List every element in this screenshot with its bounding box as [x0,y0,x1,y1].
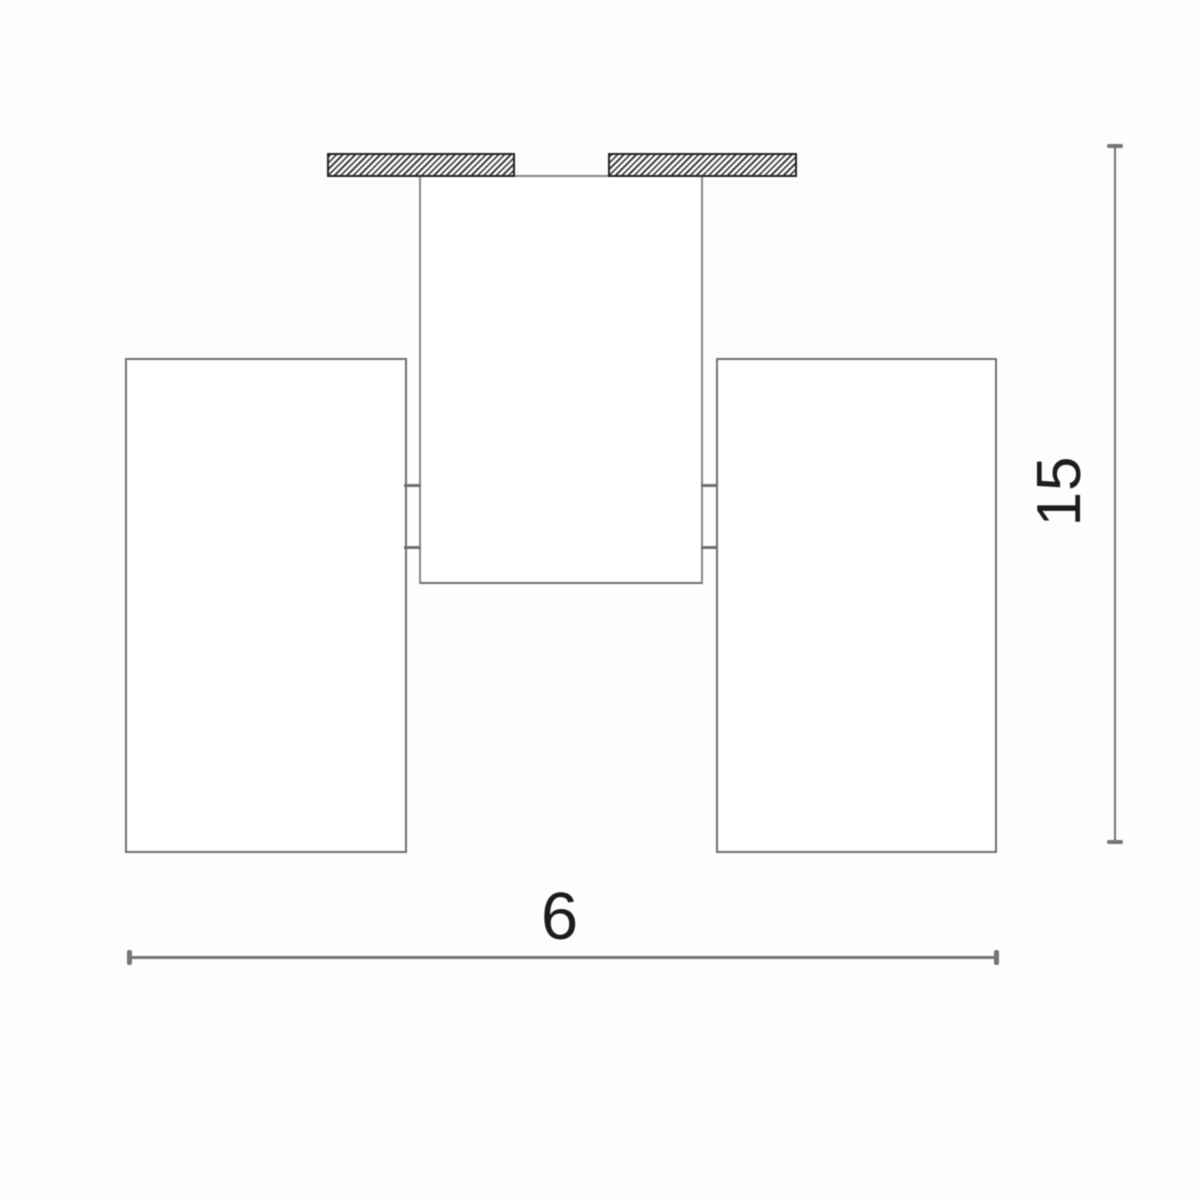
pivot-tick-right-upper [701,484,718,487]
width-dimension-label: 6 [500,880,620,952]
ceiling-mount-plate-right-hatch [608,153,797,177]
pivot-tick-right-lower [701,546,718,549]
pivot-tick-left-lower [404,546,421,549]
width-dimension-line [129,956,998,959]
height-dimension-cap-top [1107,144,1123,148]
lamp-shade-right [716,358,997,853]
drawing-canvas: 15 6 [0,0,1200,1200]
width-dimension-cap-right [994,950,999,965]
ceiling-mount-plate-left-hatch [327,153,515,177]
pivot-tick-left-upper [404,484,421,487]
height-dimension-cap-bottom [1107,840,1123,844]
height-dimension-label: 15 [999,426,1119,556]
lamp-shade-left [125,358,407,853]
fixture-body [419,177,703,584]
width-dimension-cap-left [127,950,132,965]
